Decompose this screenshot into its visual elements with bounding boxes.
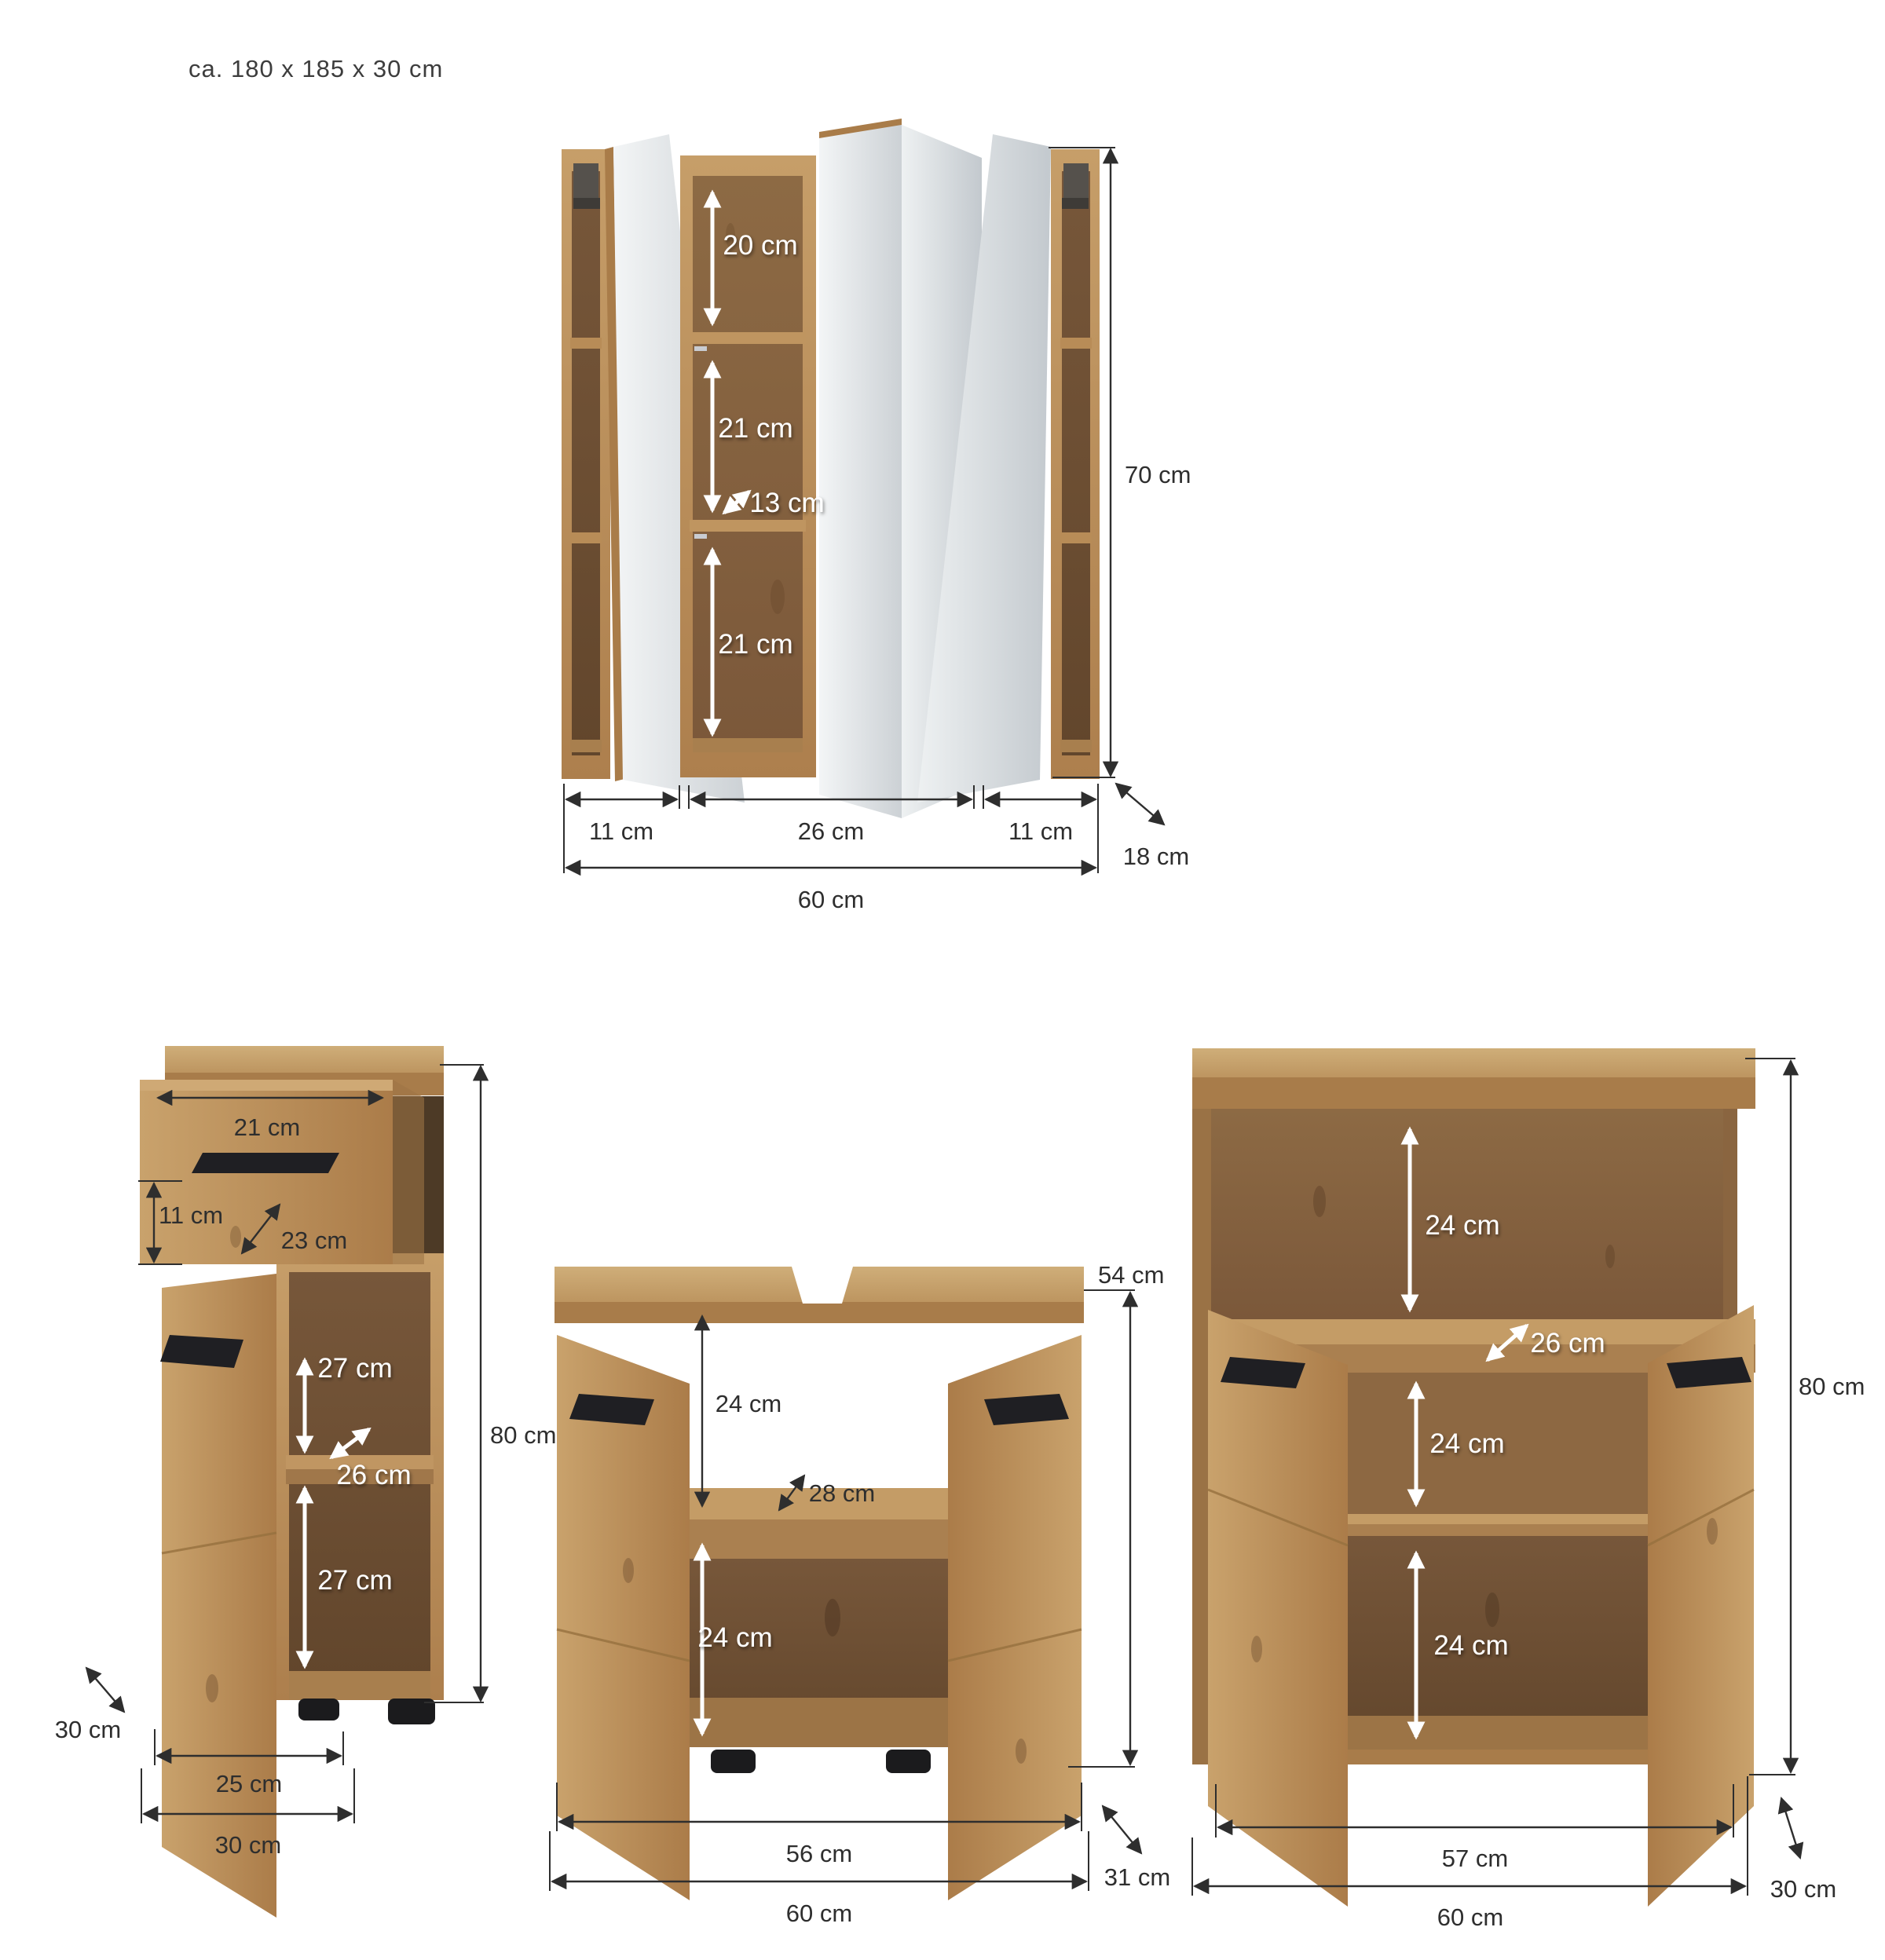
mirror-cabinet-illustration [562, 119, 1100, 818]
drawer-handle [192, 1153, 339, 1173]
side-cabinet-door-left [1208, 1310, 1348, 1907]
dim-mirror-right-width: 11 cm [1008, 817, 1073, 845]
dim-base-door-width: 25 cm [216, 1770, 282, 1797]
furniture-dimension-sheet: ca. 180 x 185 x 30 cm [0, 0, 1885, 1960]
dim-mirror-center-width: 26 cm [798, 817, 864, 845]
dim-base-height: 80 cm [490, 1421, 556, 1449]
dim-sink-depth: 31 cm [1104, 1863, 1170, 1891]
dim-base-drawer-height: 11 cm [159, 1201, 223, 1229]
dim-sink-total-width: 60 cm [786, 1900, 852, 1927]
dim-base-drawer-width: 21 cm [234, 1113, 300, 1141]
dim-mirror-depth: 18 cm [1123, 843, 1189, 870]
side-cabinet-door-right [1648, 1305, 1754, 1907]
dim-mirror-middle-compartment: 21 cm [718, 413, 792, 444]
dim-base-lower-compartment: 27 cm [317, 1565, 392, 1596]
dim-sink-lower-compartment: 24 cm [697, 1622, 772, 1653]
dim-mirror-bottom-compartment: 21 cm [718, 629, 792, 660]
dim-base-shelf-depth: 26 cm [336, 1460, 411, 1490]
dim-base-drawer-depth: 23 cm [281, 1227, 347, 1254]
side-cabinet-illustration [1192, 1048, 1755, 1907]
dim-side-middle-compartment: 24 cm [1429, 1428, 1504, 1459]
dim-side-total-width: 60 cm [1437, 1903, 1503, 1931]
dim-base-upper-compartment: 27 cm [317, 1353, 392, 1384]
mirror-door-center-left [819, 125, 902, 818]
dim-mirror-total-width: 60 cm [798, 886, 864, 913]
sink-cabinet-illustration [555, 1267, 1084, 1900]
dim-base-total-width: 30 cm [215, 1831, 281, 1859]
dim-side-top-compartment: 24 cm [1425, 1210, 1499, 1241]
dim-side-inner-width: 57 cm [1442, 1845, 1508, 1872]
dim-side-depth: 30 cm [1770, 1875, 1836, 1903]
dim-sink-inner-width: 56 cm [786, 1840, 852, 1867]
dim-side-shelf-depth: 26 cm [1530, 1328, 1605, 1358]
dim-side-bottom-compartment: 24 cm [1433, 1630, 1508, 1661]
dimension-diagram: ca. 180 x 185 x 30 cm [0, 0, 1885, 1960]
overall-dimensions-title: ca. 180 x 185 x 30 cm [188, 55, 443, 82]
dim-base-depth: 30 cm [55, 1716, 121, 1743]
dim-sink-height: 54 cm [1098, 1261, 1164, 1289]
dim-mirror-height: 70 cm [1125, 461, 1191, 488]
dim-mirror-left-width: 11 cm [589, 817, 653, 845]
dim-side-height: 80 cm [1799, 1373, 1865, 1400]
base-cabinet-door [162, 1274, 276, 1918]
dim-sink-upper-compartment: 24 cm [716, 1390, 781, 1417]
dim-mirror-top-compartment: 20 cm [723, 230, 797, 261]
dim-mirror-shelf-depth: 13 cm [749, 488, 824, 518]
dim-sink-shelf-depth: 28 cm [809, 1479, 875, 1507]
